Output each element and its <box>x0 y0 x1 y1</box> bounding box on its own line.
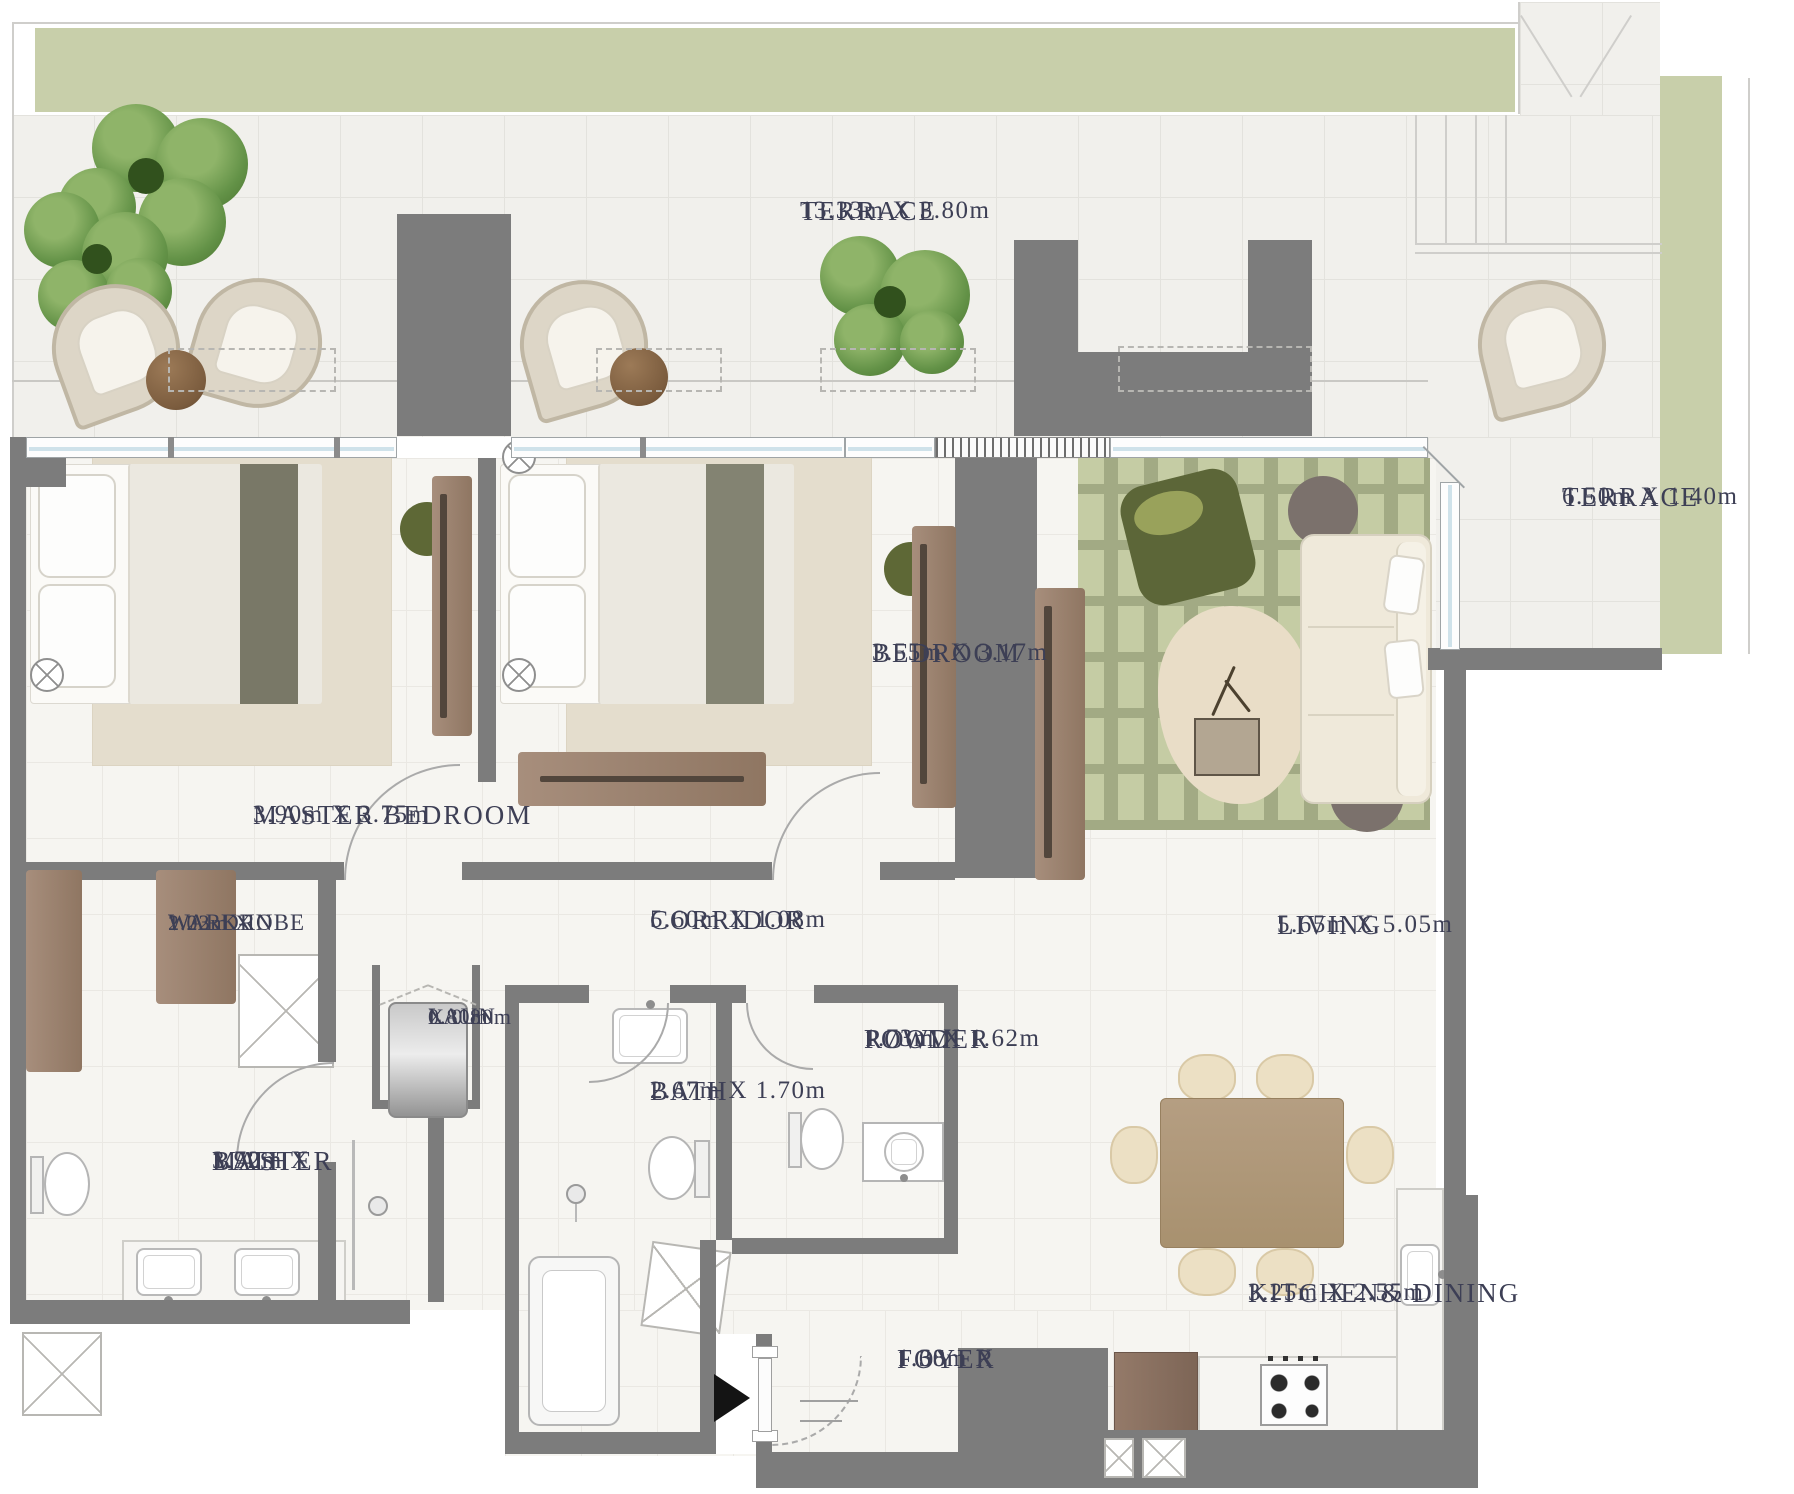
toilet-tank <box>694 1140 710 1198</box>
room-dimensions: 1.73m X 1.62m <box>864 1024 1040 1053</box>
plant-center <box>128 158 164 194</box>
boundary-line <box>12 22 14 437</box>
powder-sink <box>884 1132 924 1172</box>
stove <box>1260 1364 1328 1426</box>
bed-runner <box>706 464 764 704</box>
boundary-line <box>12 22 1518 24</box>
floor-plan: TERRACE 13.33m X 3.80m TERRACE 6.50m X 1… <box>0 0 1794 1494</box>
shower-head-icon <box>566 1184 586 1204</box>
dresser <box>432 476 472 736</box>
wall <box>716 1003 732 1240</box>
wall <box>10 437 26 1322</box>
window-mullion <box>168 437 174 458</box>
entry-door-leaf <box>758 1358 772 1432</box>
wall <box>814 985 958 1003</box>
planter-band-top <box>35 28 1515 112</box>
room-dimensions: 5.60m X 1.08m <box>650 905 826 934</box>
shower-head-icon <box>368 1196 388 1216</box>
wall <box>670 985 746 1003</box>
wall <box>318 1162 336 1310</box>
tv-panel <box>1035 588 1085 880</box>
master-bed-runner <box>240 464 298 704</box>
entrance-arrow-icon <box>714 1374 750 1422</box>
sliding-door-marker <box>596 348 722 392</box>
window <box>26 437 397 458</box>
ceiling-fixture-icon <box>502 658 536 692</box>
window <box>1110 437 1428 458</box>
step-line <box>1445 115 1447 245</box>
wall <box>756 1442 772 1488</box>
louvered-window <box>935 437 1110 458</box>
faucet <box>900 1174 908 1182</box>
step-line <box>1505 115 1507 245</box>
shower-glass <box>352 1140 355 1290</box>
wardrobe-slot <box>540 776 744 782</box>
toilet <box>800 1108 844 1170</box>
room-dimensions: 1.72m <box>212 1146 283 1175</box>
window-mullion <box>334 437 340 458</box>
step-line <box>1475 115 1477 245</box>
boundary-line <box>1415 252 1662 254</box>
sofa-cushion-divider <box>1308 626 1394 628</box>
step-line <box>1415 115 1417 245</box>
planter-band-right <box>1660 76 1722 654</box>
sofa-cushion-divider <box>1308 714 1394 716</box>
dimension-tick <box>800 1420 842 1422</box>
dimension-tick <box>800 1400 858 1402</box>
boundary-line <box>1415 243 1662 245</box>
closet-wall <box>372 965 380 1107</box>
toilet <box>648 1136 696 1200</box>
dining-chair <box>1178 1054 1236 1102</box>
door-frame <box>752 1346 778 1358</box>
sliding-door-marker <box>168 348 336 392</box>
pillow <box>508 474 586 578</box>
dining-chair <box>1256 1054 1314 1102</box>
toilet-tank <box>30 1156 44 1214</box>
column <box>397 214 511 436</box>
plant-center <box>874 286 906 318</box>
window <box>511 437 845 458</box>
master-sink <box>234 1248 300 1296</box>
room-dimensions: X 0.80m <box>428 1004 512 1030</box>
column <box>1014 240 1078 356</box>
room-dimensions: 1.30m <box>897 1344 968 1373</box>
column <box>1248 240 1312 356</box>
dining-chair <box>1178 1248 1236 1296</box>
room-dimensions: 1.22m <box>168 910 229 936</box>
wall <box>478 458 496 782</box>
wall <box>880 862 955 880</box>
wardrobe-shelf <box>156 870 236 1004</box>
bed-duvet <box>598 464 794 704</box>
closet-wall <box>472 965 480 1107</box>
bathtub-inner <box>542 1270 606 1412</box>
shoe-cabinet-void <box>640 1241 731 1337</box>
wardrobe-shelf <box>26 870 82 1072</box>
shaft-void <box>1104 1438 1134 1478</box>
room-dimensions: 5.65m X 5.05m <box>1277 910 1453 939</box>
table-tray <box>1194 718 1260 776</box>
shower-stem <box>575 1204 577 1222</box>
room-dimensions: 3.90m X 3.75m <box>253 800 429 829</box>
wall <box>505 985 589 1003</box>
wall <box>462 862 772 880</box>
room-dimensions: 3.25m X 2.55m <box>1248 1278 1424 1307</box>
ceiling-fixture-icon <box>30 658 64 692</box>
window-mullion <box>640 437 646 458</box>
wall <box>505 1003 519 1453</box>
room-dimensions: 2.67m X 1.70m <box>650 1076 826 1105</box>
wall <box>10 1300 410 1324</box>
sofa-pillow <box>1383 638 1425 699</box>
plant-center <box>82 244 112 274</box>
terrace-floor-notch <box>1520 2 1660 115</box>
shaft-void <box>1142 1438 1186 1478</box>
master-sink <box>136 1248 202 1296</box>
sliding-door-marker <box>1118 346 1312 392</box>
sliding-door-marker <box>820 348 976 392</box>
wall <box>505 1432 716 1454</box>
dining-chair <box>1346 1126 1394 1184</box>
kitchen-counter-right <box>1396 1188 1444 1432</box>
dining-table <box>1160 1098 1344 1248</box>
room-dimensions: 13.33m X 3.80m <box>800 196 990 225</box>
boundary-line <box>1748 78 1750 654</box>
window <box>1440 482 1460 650</box>
wall <box>428 1104 444 1302</box>
utility-void <box>22 1332 102 1416</box>
terrace-side-floor <box>1428 437 1660 650</box>
wall <box>318 880 336 1062</box>
wall <box>732 1238 958 1254</box>
room-dimensions: 6.50m X 1.40m <box>1562 482 1738 511</box>
wall <box>1444 1195 1478 1435</box>
dining-chair <box>1110 1126 1158 1184</box>
toilet <box>44 1152 90 1216</box>
pillow <box>38 474 116 578</box>
room-dimensions: 3.55m X 3.17m <box>872 638 1048 667</box>
boundary-line <box>1518 2 1520 114</box>
window <box>845 437 935 458</box>
stove-knobs <box>1268 1356 1318 1361</box>
dresser-slot <box>440 494 447 718</box>
